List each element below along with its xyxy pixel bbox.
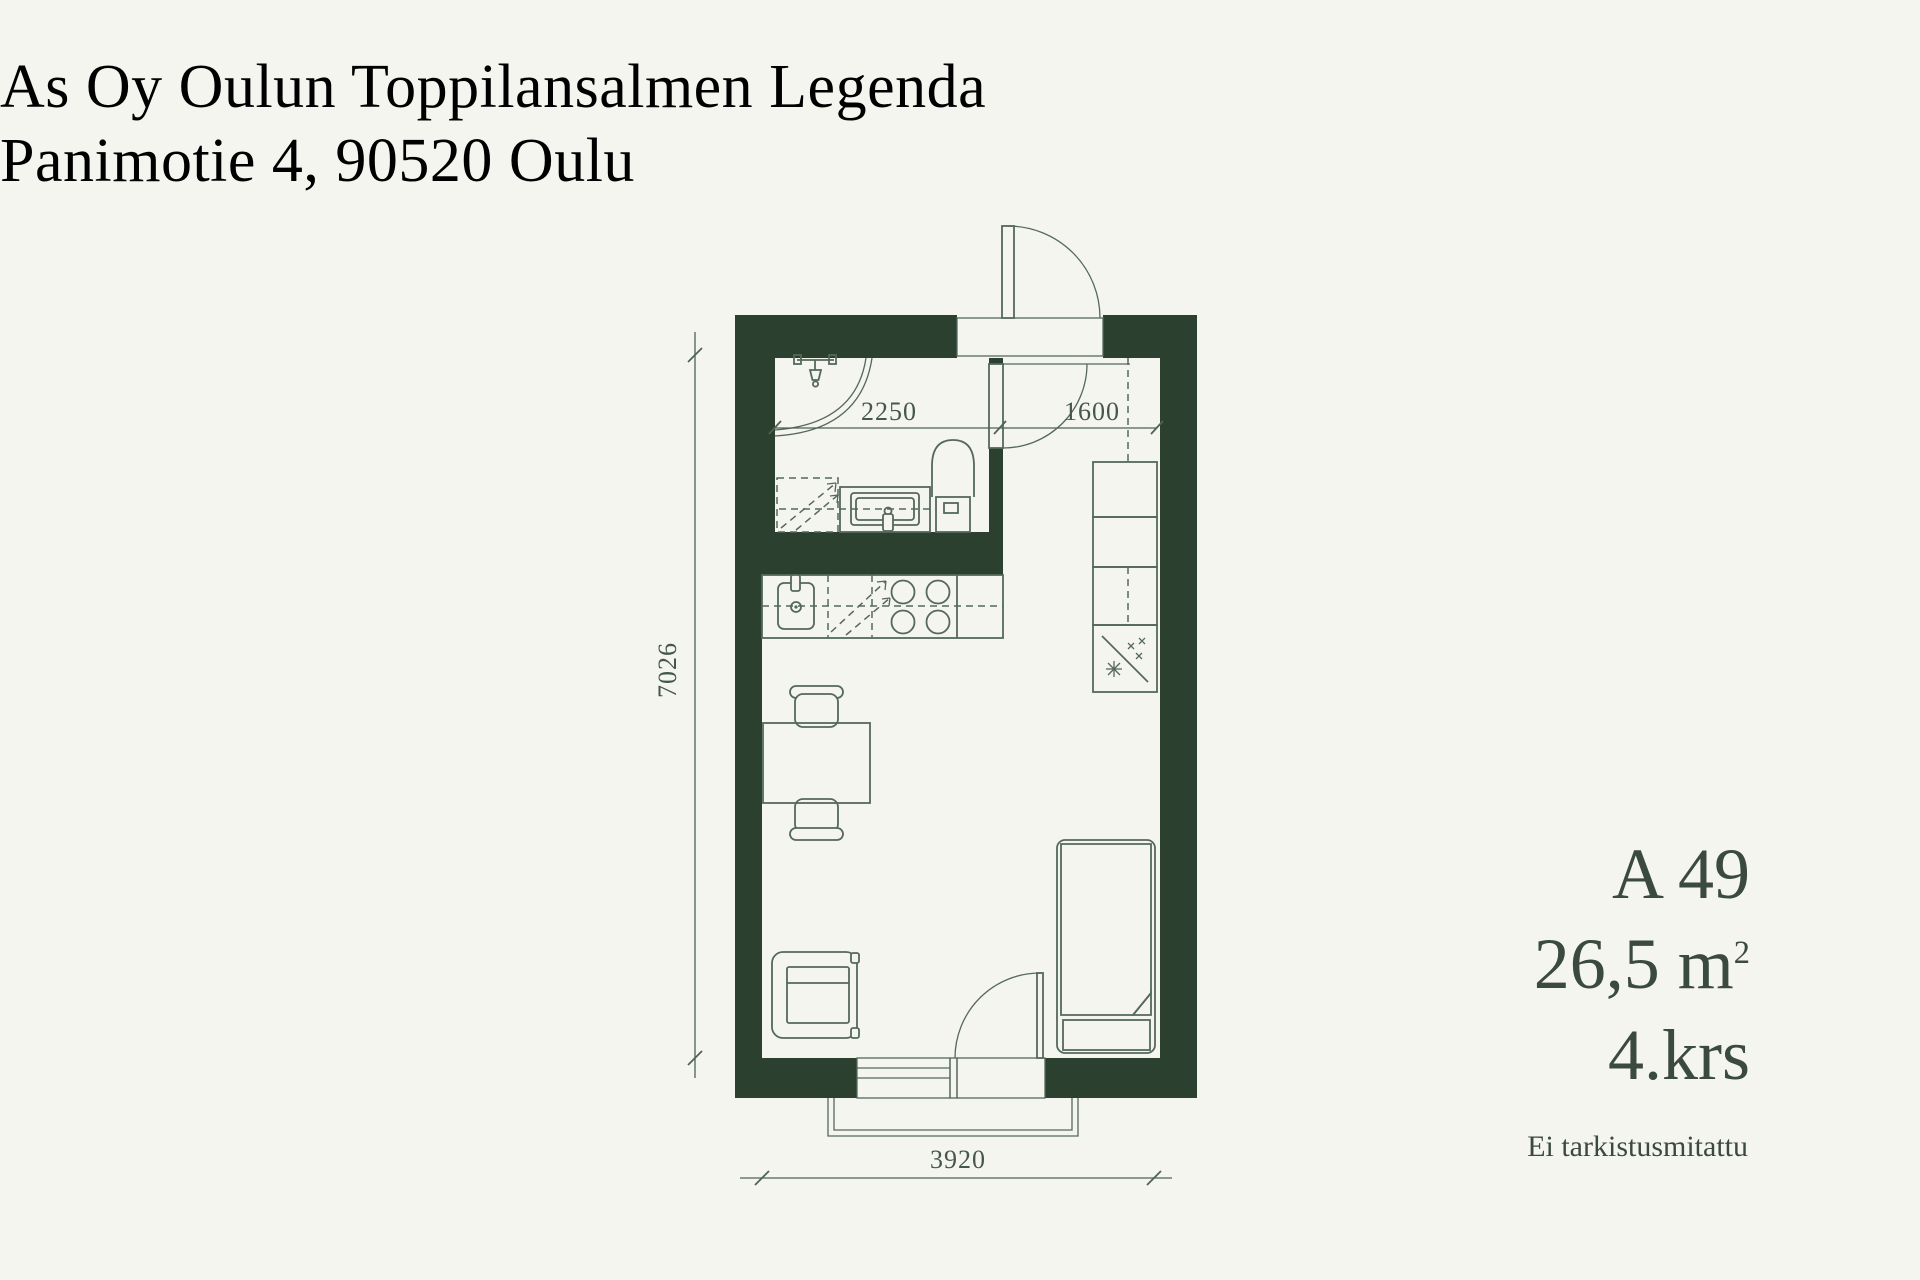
- dimension-label-hall: 1600: [1064, 397, 1120, 426]
- wall-left: [735, 315, 762, 1098]
- unit-area-exponent: 2: [1734, 935, 1750, 971]
- wall-top-left: [735, 315, 957, 358]
- dimension-label-length: 7026: [653, 642, 682, 698]
- chair: [790, 799, 843, 840]
- balcony-door-leaf: [1037, 973, 1043, 1058]
- fridge-freezer-icon: [1093, 625, 1157, 692]
- bed-blanket-fold: [1133, 993, 1151, 1015]
- unit-note: Ei tarkistusmitattu: [1148, 1130, 1748, 1164]
- unit-area: 26,5 m2: [1150, 928, 1750, 1000]
- unit-code: A 49: [1150, 838, 1750, 910]
- shower-icon: [794, 355, 836, 387]
- dimension-bottom: 3920: [740, 1145, 1172, 1185]
- wardrobe-cabinet: [1093, 462, 1157, 517]
- balcony-door-swing-icon: [955, 973, 1040, 1058]
- window-mullion: [950, 1058, 957, 1098]
- wall-bath-right: [989, 448, 1003, 532]
- bed: [1057, 840, 1155, 1053]
- toilet-icon: [932, 440, 974, 532]
- balcony-door: [955, 973, 1045, 1098]
- bed-foot: [1063, 1020, 1150, 1050]
- entrance-sill: [957, 318, 1103, 356]
- wardrobe-cabinet: [1093, 517, 1157, 567]
- entrance-door-swing-icon: [1008, 226, 1100, 318]
- unit-area-value: 26,5 m: [1534, 924, 1734, 1004]
- chair: [790, 686, 843, 727]
- dimension-left: 7026: [653, 332, 702, 1078]
- armchair: [772, 952, 859, 1038]
- kitchen: [762, 575, 1003, 638]
- kitchen-sink-icon: [778, 575, 814, 629]
- dimension-label-bath: 2250: [861, 397, 917, 426]
- furniture: [763, 686, 1155, 1053]
- shower-curtain-line: [775, 358, 866, 430]
- dining-table: [763, 723, 870, 803]
- bed-blanket: [1061, 844, 1151, 1015]
- unit-floor: 4.krs: [1150, 1019, 1750, 1091]
- balcony-door-sill: [957, 1058, 1045, 1098]
- wall-bath-bottom: [762, 532, 1003, 575]
- bathroom: [775, 355, 974, 532]
- wardrobe-cabinet: [1093, 567, 1157, 625]
- wall-bottom-left: [735, 1058, 857, 1098]
- entrance-door-leaf: [1002, 226, 1014, 318]
- balcony: [828, 1098, 1078, 1136]
- bathroom-door-leaf: [989, 364, 1003, 448]
- shower-curtain-line2: [775, 358, 872, 436]
- window: [857, 1058, 957, 1098]
- dimension-label-width: 3920: [930, 1145, 986, 1174]
- washing-machine-icon: [777, 478, 838, 532]
